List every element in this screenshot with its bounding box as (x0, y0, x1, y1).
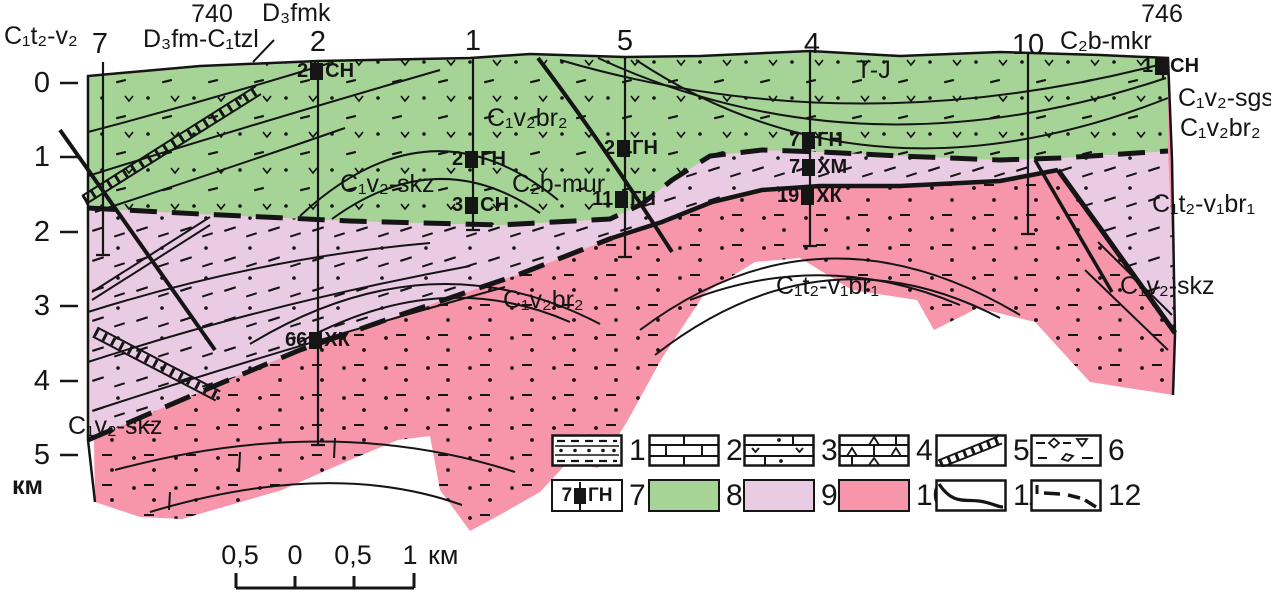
marker-num: 2 (297, 61, 308, 81)
elevation-746: 746 (1141, 2, 1183, 27)
legend-item-9: 9 (743, 479, 838, 512)
legend-number: 2 (726, 436, 743, 466)
legend-item-3: 3 (743, 434, 838, 467)
zone-label-green-br2: C₁v₂br₂ (487, 106, 568, 131)
legend-well-label: ГН (588, 485, 613, 507)
strat-label-top-left: C₁t₂-v₂ (4, 24, 78, 49)
legend-well-num: 7 (561, 485, 572, 507)
legend-number: 7 (629, 481, 646, 511)
marker-label: ГН (817, 130, 843, 150)
marker-square-icon (309, 332, 322, 349)
well-number-5: 5 (617, 27, 633, 56)
marker-label: ГН (630, 189, 656, 209)
marker-label: СН (325, 61, 354, 81)
marker-square-icon (617, 140, 630, 157)
legend-number: 8 (726, 481, 743, 511)
zone-label-bottom-skz: C₁v₂-skz (68, 414, 163, 439)
well-number-10: 10 (1012, 31, 1044, 60)
geological-boundary-line-icon (935, 479, 1007, 512)
scale-bar (236, 573, 414, 588)
marker-label: ХК (816, 186, 842, 206)
zone-label-pink-br2: C₁v₂br₂ (503, 288, 584, 313)
legend-item-10: 10 (838, 479, 949, 512)
depth-tick-4: 4 (8, 367, 50, 396)
legend-item-2: 2 (648, 434, 743, 467)
marker-well4-hk: 19ХК (777, 186, 842, 206)
marker-square-icon (615, 191, 628, 208)
marker-num: 1 (1142, 56, 1153, 76)
marker-well2-sn: 2СН (297, 61, 354, 81)
legend-item-7: 7 ГН 7 (551, 479, 646, 512)
scale-bar-unit: км (428, 542, 458, 569)
marker-num: 66 (285, 330, 307, 350)
legend-number: 1 (629, 436, 646, 466)
marker-right-sn: 1СН (1142, 56, 1199, 76)
legend-number: 4 (916, 436, 933, 466)
strat-label-dfm-tzl: D₃fm-C₁tzl (143, 27, 259, 52)
zone-label-right-sgs: C₁v₂-sgs (1178, 86, 1271, 111)
marker-well4-hm: 7ХМ (789, 157, 847, 177)
lilac-unit-fill-icon (743, 479, 815, 512)
legend-item-1: 1 (551, 434, 646, 467)
scale-label-0_5-left: 0,5 (221, 542, 259, 569)
marker-well2-hk: 66ХК (285, 330, 350, 350)
marker-label: СН (480, 195, 509, 215)
marker-num: 11 (592, 189, 613, 209)
marker-well5-gn: 2ГН (604, 138, 658, 158)
limestone-brick-pattern-icon (648, 434, 720, 467)
well-test-marker-icon: 7 ГН (551, 479, 623, 512)
green-unit-fill-icon (648, 479, 720, 512)
dash-dot-bedding-pattern-icon (551, 434, 623, 467)
legend-item-4: 4 (838, 434, 933, 467)
well-number-1: 1 (465, 27, 481, 56)
well-number-4: 4 (804, 30, 820, 59)
marker-well4-gn: 7ГН (789, 130, 843, 150)
depth-tick-2: 2 (8, 218, 50, 247)
marker-num: 2 (452, 149, 463, 169)
well-number-2: 2 (310, 28, 326, 57)
marker-well1-gn: 2ГН (452, 149, 506, 169)
legend-item-6: 6 (1030, 434, 1125, 467)
legend-item-12: 12 (1030, 479, 1141, 512)
scale-label-0: 0 (287, 542, 302, 569)
strat-label-cb-mkr: C₂b-mkr (1060, 29, 1152, 54)
diamond-conglomerate-pattern-icon (1030, 434, 1102, 467)
marker-num: 3 (452, 195, 463, 215)
depth-tick-0: 0 (8, 69, 50, 98)
well-number-7: 7 (92, 30, 108, 59)
legend-item-5: 5 (935, 434, 1030, 467)
dots-and-v-pattern-icon (743, 434, 815, 467)
depth-tick-5: 5 (8, 441, 50, 470)
legend-number: 5 (1013, 436, 1030, 466)
legend-number: 6 (1108, 436, 1125, 466)
zone-label-right-skz: C₁v₂-skz (1120, 274, 1215, 299)
marker-num: 7 (789, 130, 800, 150)
marker-num: 2 (604, 138, 615, 158)
scale-label-0_5-right: 0,5 (334, 542, 372, 569)
marker-label: ГН (632, 138, 658, 158)
legend-number: 9 (821, 481, 838, 511)
marker-square-icon (802, 159, 815, 176)
strat-label-dfmk: D₃fmk (262, 1, 331, 26)
zone-label-green-skz: C₁v₂-skz (340, 172, 435, 197)
geological-cross-section: C₁t₂-v₂ 7 740 D₃fm-C₁tzl D₃fmk 2 1 5 4 1… (0, 0, 1271, 593)
marker-label: ГН (480, 149, 506, 169)
legend-number: 12 (1108, 481, 1141, 511)
zone-label-tj: T-J (856, 58, 891, 83)
marker-num: 7 (789, 157, 800, 177)
marker-square-icon (802, 132, 815, 149)
unconformity-dashed-line-icon (1030, 479, 1102, 512)
depth-axis-unit: км (12, 474, 43, 499)
zone-label-right-t2v1br1: C₁t₂-v₁br₁ (1152, 192, 1255, 217)
marker-well1-sn: 3СН (452, 195, 509, 215)
triangle-breccia-pattern-icon (838, 434, 910, 467)
scale-label-1: 1 (402, 542, 417, 569)
depth-tick-1: 1 (8, 143, 50, 172)
legend-item-8: 8 (648, 479, 743, 512)
marker-square-icon (465, 151, 478, 168)
legend-number: 3 (821, 436, 838, 466)
marker-square-icon (801, 188, 814, 205)
marker-label: СН (1170, 56, 1199, 76)
depth-axis-ticks (60, 83, 78, 455)
marker-label: ХК (324, 330, 350, 350)
zone-label-right-br2: C₁v₂br₂ (1180, 116, 1261, 141)
pink-unit-fill-icon (838, 479, 910, 512)
marker-square-icon (1155, 58, 1168, 75)
legend-item-11: 11 (935, 479, 1044, 512)
marker-square-icon (310, 63, 323, 80)
elevation-740: 740 (191, 2, 233, 27)
crush-zone-band-icon (935, 434, 1007, 467)
depth-tick-3: 3 (8, 292, 50, 321)
marker-square-icon (465, 197, 478, 214)
zone-label-pink-t2v1br1: C₁t₂-v₁br₁ (776, 274, 879, 299)
marker-well5-gn2: 11ГН (592, 189, 656, 209)
marker-square-icon (574, 488, 586, 504)
marker-label: ХМ (817, 157, 847, 177)
marker-num: 19 (777, 186, 799, 206)
